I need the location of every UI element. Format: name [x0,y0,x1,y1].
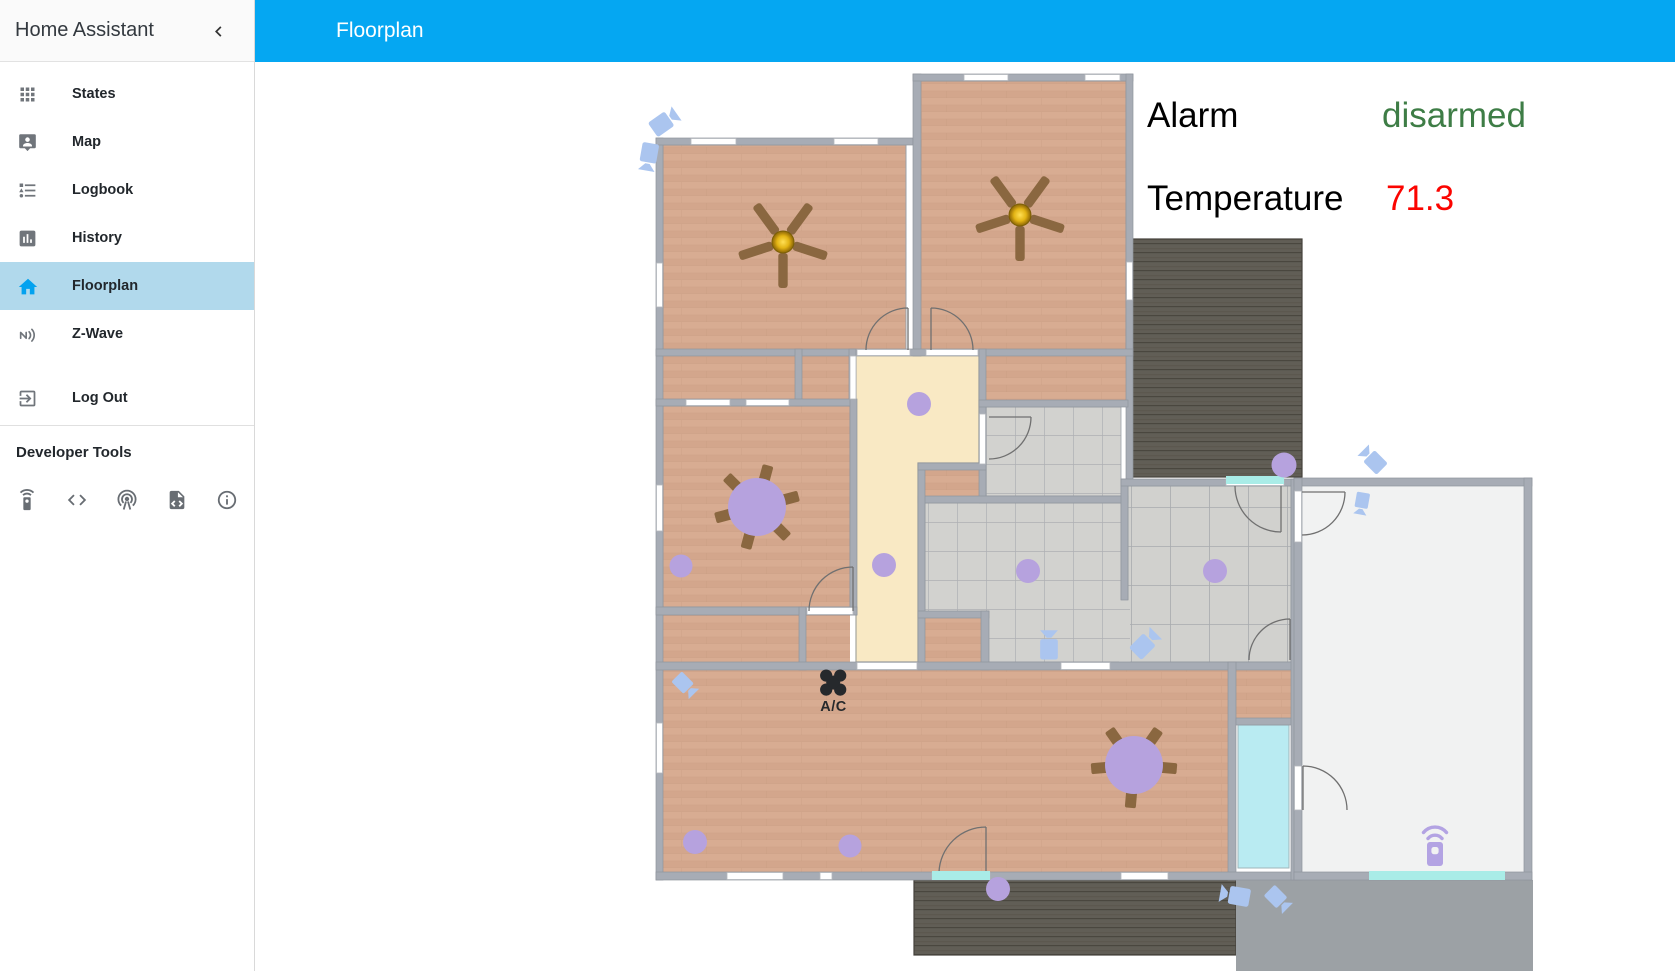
svg-text:A/C: A/C [820,699,847,715]
